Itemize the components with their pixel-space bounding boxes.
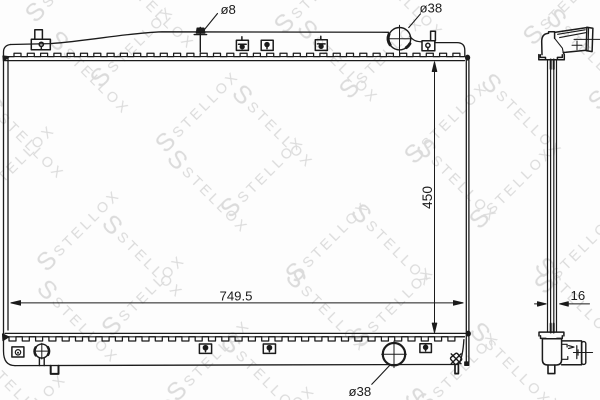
svg-text:ø38: ø38 bbox=[349, 384, 372, 399]
svg-text:450: 450 bbox=[420, 186, 435, 209]
svg-text:ø8: ø8 bbox=[221, 2, 236, 17]
svg-text:749.5: 749.5 bbox=[220, 288, 253, 303]
svg-text:ø38: ø38 bbox=[420, 0, 443, 15]
svg-text:16: 16 bbox=[571, 288, 586, 303]
